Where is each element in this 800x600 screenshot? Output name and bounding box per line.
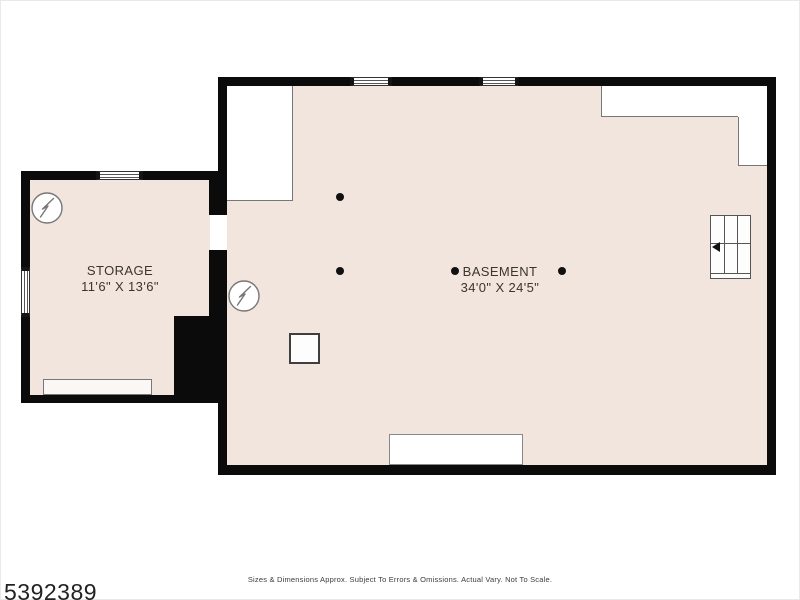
door-opening <box>210 215 227 250</box>
stair-base-line <box>711 273 750 274</box>
top-right-notch-a <box>601 86 738 117</box>
storage-room-label: STORAGE 11'6" X 13'6" <box>54 263 186 295</box>
wall-interior-upper <box>209 171 227 215</box>
support-column-dot <box>336 267 344 275</box>
storage-room-dimensions: 11'6" X 13'6" <box>54 279 186 295</box>
electrical-symbol-icon <box>31 192 63 224</box>
window-symbol-basement-top-left-icon <box>350 77 392 86</box>
wall-interior-lower <box>209 250 227 316</box>
wall-basement-right <box>767 77 776 475</box>
storage-room-name: STORAGE <box>54 263 186 279</box>
top-left-notch <box>227 86 293 201</box>
stair-direction-arrow-icon <box>712 242 720 252</box>
basement-room-label: BASEMENT 34'0" X 24'5" <box>437 264 563 296</box>
support-column-dot <box>336 193 344 201</box>
window-symbol-storage-top-icon <box>96 171 143 180</box>
top-right-notch-edge <box>738 117 739 166</box>
basement-room-name: BASEMENT <box>437 264 563 280</box>
stair-tread-line <box>737 216 738 273</box>
staircase <box>710 215 751 279</box>
floorplan-page: STORAGE 11'6" X 13'6" BASEMENT 34'0" X 2… <box>0 0 800 600</box>
disclaimer-text: Sizes & Dimensions Approx. Subject To Er… <box>0 575 800 584</box>
support-post <box>289 333 320 364</box>
wall-corner-mass <box>174 316 227 403</box>
window-symbol-basement-top-right-icon <box>479 77 519 86</box>
window-symbol-storage-left-icon <box>21 267 30 317</box>
stair-tread-line <box>724 216 725 273</box>
basement-room-dimensions: 34'0" X 24'5" <box>437 280 563 296</box>
basement-bottom-recess <box>389 434 523 465</box>
top-right-notch-b <box>738 86 767 166</box>
electrical-symbol-icon <box>228 280 260 312</box>
wall-basement-bottom <box>218 465 776 475</box>
storage-bottom-recess <box>43 379 152 395</box>
